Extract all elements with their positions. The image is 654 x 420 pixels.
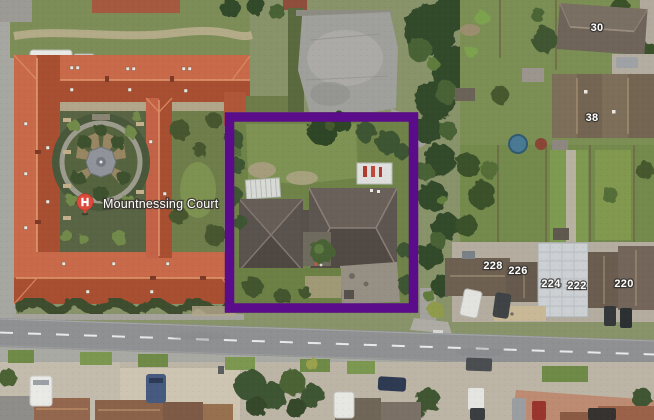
house-number-label: 38 bbox=[586, 112, 599, 124]
satellite-map[interactable]: 3038228226224222220 Mountnessing Court bbox=[0, 0, 654, 420]
house-number-label: 224 bbox=[541, 278, 561, 290]
poi-label[interactable]: Mountnessing Court bbox=[103, 197, 219, 211]
image-grain bbox=[0, 0, 654, 420]
house-number-label: 226 bbox=[508, 265, 527, 277]
house-number-label: 30 bbox=[591, 22, 604, 34]
map-viewport: 3038228226224222220 Mountnessing Court bbox=[0, 0, 654, 420]
house-number-label: 228 bbox=[483, 260, 502, 272]
house-number-label: 222 bbox=[567, 280, 586, 292]
house-number-label: 220 bbox=[614, 278, 633, 290]
